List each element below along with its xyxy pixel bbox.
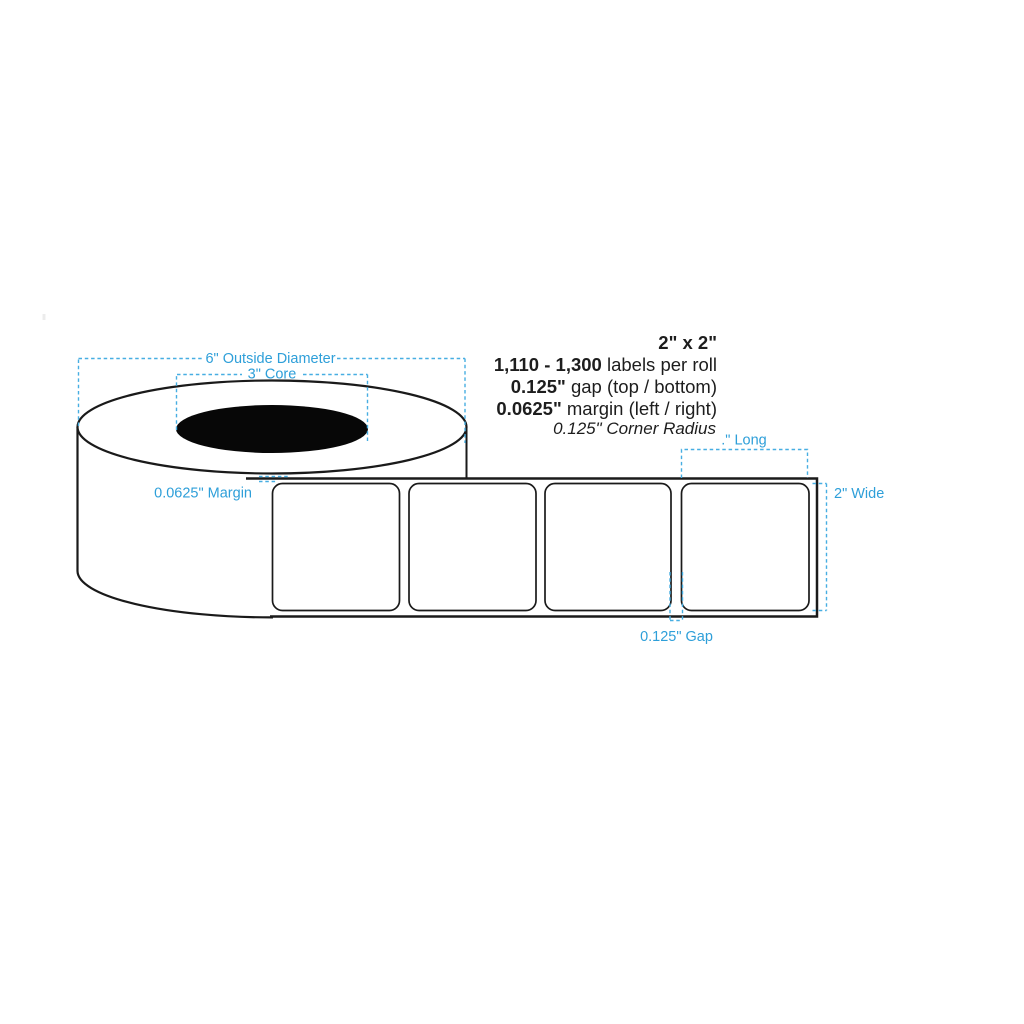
spec-margin: 0.0625" margin (left / right) [496,398,717,419]
label-blank-1 [273,484,400,611]
spec-size: 2" x 2" [658,332,717,353]
spec-gap-suffix: gap (top / bottom) [566,376,717,397]
spec-gap: 0.125" gap (top / bottom) [511,376,717,397]
spec-quantity-value: 1,110 - 1,300 [494,354,602,375]
long-bracket [682,450,808,479]
roll-core-hole [176,405,368,453]
spec-margin-value: 0.0625" [496,398,561,419]
spec-text-block: 2" x 2" 1,110 - 1,300 labels per roll 0.… [494,332,717,438]
long-label: ." Long [721,433,766,449]
spec-corner-radius: 0.125" Corner Radius [553,419,716,438]
spec-quantity: 1,110 - 1,300 labels per roll [494,354,717,375]
core-label: 3" Core [248,367,297,383]
spec-gap-value: 0.125" [511,376,566,397]
outside-diameter-label: 6" Outside Diameter [205,351,335,367]
gap-label: 0.125" Gap [640,629,713,645]
label-roll-diagram: 6" Outside Diameter 3" Core 0.0625" Marg… [0,0,1024,1024]
spec-quantity-suffix: labels per roll [602,354,717,375]
stray-mark [43,314,46,320]
label-blank-2 [409,484,536,611]
label-blank-3 [545,484,671,611]
spec-margin-suffix: margin (left / right) [562,398,717,419]
diagram-svg: 6" Outside Diameter 3" Core 0.0625" Marg… [0,0,1024,1024]
wide-label: 2" Wide [834,486,884,502]
label-blank-4 [682,484,810,611]
margin-label: 0.0625" Margin [154,486,252,502]
